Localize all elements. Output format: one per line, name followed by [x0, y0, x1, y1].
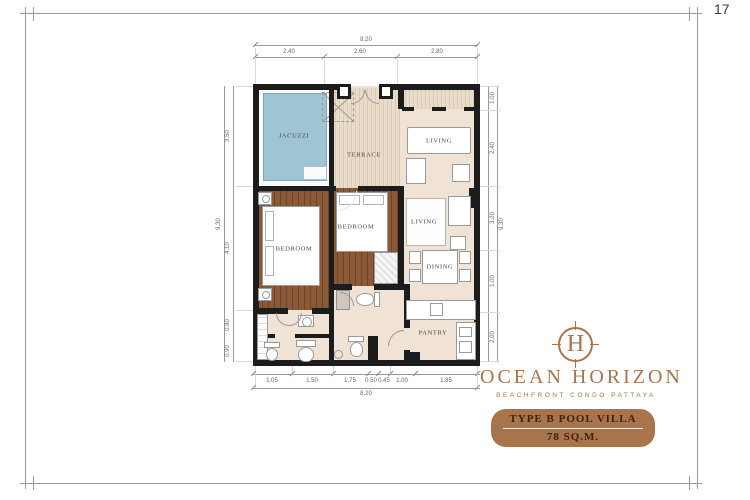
ext-line — [480, 110, 500, 111]
ext-line — [477, 48, 478, 84]
dim-line — [253, 388, 480, 389]
pool-step — [303, 166, 327, 180]
ext-line — [236, 86, 253, 87]
dim-bottom-seg: 1.05 — [266, 378, 278, 384]
dim-bottom-seg: 1.85 — [440, 378, 452, 384]
frame-bottom-line — [20, 483, 702, 484]
toilet-bowl — [298, 347, 314, 362]
toilet-bowl — [356, 293, 374, 306]
armchair — [406, 158, 426, 184]
brochure-page: 17 — [0, 0, 750, 500]
wardrobe — [374, 252, 398, 284]
room-label-terrace: TERRACE — [347, 152, 381, 159]
dim-bottom-total: 8.20 — [360, 391, 372, 397]
toilet-tank — [374, 292, 380, 307]
crop-mark — [33, 7, 34, 21]
sink-basin-icon — [302, 317, 312, 327]
dim-bottom-seg: 1.75 — [344, 378, 356, 384]
dim-top-seg: 2.40 — [283, 49, 295, 55]
dim-right-seg: 1.00 — [490, 92, 496, 104]
wall — [295, 334, 334, 338]
pillow — [265, 246, 274, 276]
dining-chair — [459, 251, 471, 264]
terrace-strip — [402, 88, 476, 109]
side-table — [452, 164, 470, 182]
dim-left-seg: 0.80 — [225, 319, 231, 331]
wall — [398, 186, 404, 290]
ext-line — [480, 250, 500, 251]
wall — [253, 186, 336, 191]
dining-chair — [409, 269, 421, 282]
ext-line — [236, 186, 253, 187]
page-number: 17 — [714, 1, 730, 17]
wall — [432, 107, 446, 111]
wall — [368, 336, 378, 366]
ext-line — [236, 310, 253, 311]
ext-line — [324, 60, 325, 84]
wall — [253, 360, 480, 366]
crop-mark — [33, 476, 34, 490]
wall — [329, 312, 334, 366]
cooktop — [459, 341, 472, 353]
dim-line — [233, 86, 234, 362]
drain-icon — [334, 350, 343, 359]
dining-chair — [409, 251, 421, 264]
room-label-living-2: LIVING — [411, 219, 437, 226]
room-label-dining: DINING — [427, 264, 454, 271]
wall — [329, 190, 334, 312]
dim-line — [488, 86, 489, 362]
room-label-bedroom-2: BEDROOM — [338, 224, 375, 231]
unit-type-badge: TYPE B POOL VILLA 78 SQ.M. — [491, 409, 655, 447]
frame-top-line — [20, 13, 702, 14]
wall — [464, 107, 476, 111]
badge-area: 78 SQ.M. — [491, 429, 655, 446]
crop-mark — [689, 476, 690, 490]
ext-line — [480, 86, 500, 87]
lamp-icon — [262, 291, 270, 299]
entry-pillar-core — [382, 87, 390, 96]
brand-monogram: H — [567, 331, 584, 357]
side-table — [450, 236, 466, 250]
logo-tick-right — [590, 344, 599, 345]
logo-tick-top — [575, 321, 576, 330]
dim-top-seg: 2.80 — [431, 49, 443, 55]
dim-line — [255, 57, 478, 58]
wall — [380, 84, 480, 90]
dim-line — [497, 86, 498, 362]
room-label-jacuzzi: JACUZZI — [279, 133, 310, 140]
dining-chair — [459, 269, 471, 282]
ext-line — [236, 361, 253, 362]
frame-left-line — [25, 7, 26, 489]
ext-line — [255, 48, 256, 84]
pillow — [363, 195, 384, 205]
dim-left-seg: 3.50 — [225, 130, 231, 142]
frame-right-line — [697, 7, 698, 489]
dim-right-total: 9.30 — [499, 218, 505, 230]
ext-line — [480, 312, 500, 313]
room-label-pantry: PANTRY — [419, 330, 448, 337]
dim-bottom-seg: 1.00 — [396, 378, 408, 384]
dim-bottom-seg: 0.45 — [378, 378, 390, 384]
wall — [329, 84, 334, 190]
dim-bottom-seg: 1.50 — [306, 378, 318, 384]
brand-tagline: BEACHFRONT CONDO PATTAYA — [480, 392, 672, 399]
dim-line — [255, 45, 478, 46]
logo-tick-left — [552, 344, 561, 345]
room-label-bedroom-1: BEDROOM — [276, 246, 313, 253]
kitchen-sink — [430, 303, 443, 316]
ext-line — [397, 60, 398, 84]
ext-line — [480, 361, 500, 362]
toilet-bowl — [266, 348, 278, 361]
dim-top-seg: 2.60 — [354, 49, 366, 55]
armchair — [448, 196, 471, 226]
room-label-living-1: LIVING — [426, 138, 452, 145]
pillow — [265, 211, 274, 241]
lamp-icon — [262, 195, 270, 203]
dim-tick — [475, 42, 481, 48]
dim-top-total: 8.20 — [360, 37, 372, 43]
wall — [402, 107, 414, 111]
toilet-tank — [296, 340, 316, 347]
dim-left-seg: 4.10 — [225, 242, 231, 254]
dim-right-seg: 2.40 — [490, 142, 496, 154]
dim-left-total: 9.30 — [216, 218, 222, 230]
cooktop — [459, 327, 472, 337]
dim-left-seg: 0.90 — [225, 345, 231, 357]
badge-unit-type: TYPE B POOL VILLA — [491, 409, 655, 428]
wall — [374, 284, 404, 290]
ext-line — [480, 186, 500, 187]
crop-mark — [689, 7, 690, 21]
entry-pillar-core — [340, 87, 348, 96]
toilet-bowl — [350, 342, 363, 357]
dim-bottom-seg: 0.50 — [365, 378, 377, 384]
brand-name: OCEAN HORIZON — [480, 366, 672, 389]
dim-right-seg: 1.00 — [490, 275, 496, 287]
dim-right-seg: 3.20 — [490, 212, 496, 224]
wall — [398, 84, 404, 109]
wall — [253, 84, 350, 90]
wall-column — [404, 352, 420, 366]
brand-logo-circle: H — [558, 327, 593, 362]
dim-right-seg: 2.00 — [490, 331, 496, 343]
